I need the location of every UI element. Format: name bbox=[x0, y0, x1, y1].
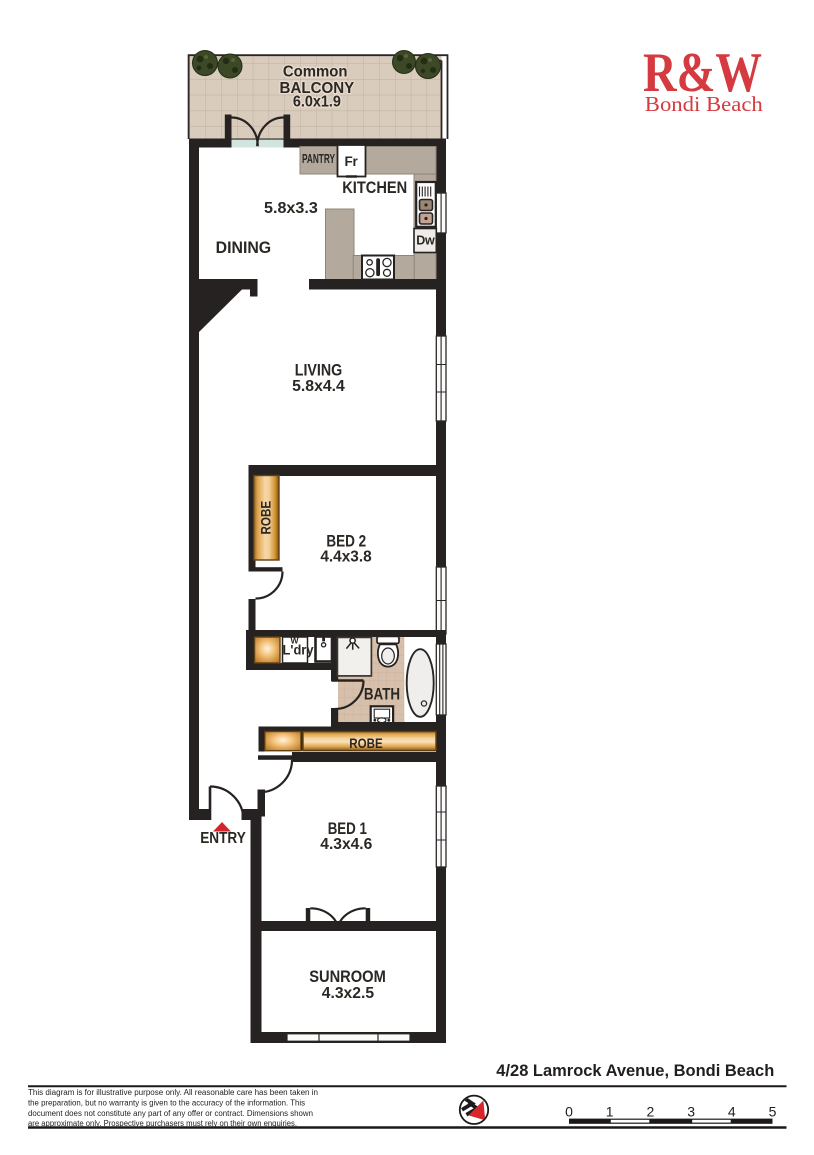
svg-text:4.4x3.8: 4.4x3.8 bbox=[320, 548, 371, 565]
svg-text:6.0x1.9: 6.0x1.9 bbox=[293, 93, 341, 110]
svg-text:Fr: Fr bbox=[345, 154, 359, 169]
svg-text:LIVING: LIVING bbox=[295, 361, 343, 379]
svg-text:ROBE: ROBE bbox=[259, 501, 274, 535]
svg-text:the preparation, but no warran: the preparation, but no warranty is give… bbox=[28, 1099, 305, 1108]
svg-text:Bondi Beach: Bondi Beach bbox=[645, 92, 763, 116]
svg-text:1: 1 bbox=[606, 1104, 614, 1120]
svg-text:ROBE: ROBE bbox=[349, 736, 383, 751]
svg-text:0: 0 bbox=[565, 1104, 573, 1120]
svg-text:This diagram is for illustrati: This diagram is for illustrative purpose… bbox=[28, 1088, 318, 1097]
svg-text:KITCHEN: KITCHEN bbox=[342, 179, 407, 197]
svg-text:5: 5 bbox=[769, 1104, 777, 1120]
svg-text:5.8x3.3: 5.8x3.3 bbox=[264, 200, 318, 217]
svg-text:3: 3 bbox=[687, 1104, 695, 1120]
svg-text:Dw: Dw bbox=[416, 234, 435, 248]
svg-text:BATH: BATH bbox=[364, 686, 400, 704]
svg-text:PANTRY: PANTRY bbox=[302, 151, 335, 166]
svg-text:ENTRY: ENTRY bbox=[200, 830, 246, 847]
svg-text:document does not constitute a: document does not constitute any part of… bbox=[28, 1109, 313, 1118]
svg-text:5.8x4.4: 5.8x4.4 bbox=[292, 378, 345, 395]
svg-text:SUNROOM: SUNROOM bbox=[309, 968, 386, 986]
svg-text:4.3x2.5: 4.3x2.5 bbox=[322, 985, 374, 1002]
svg-text:4/28 Lamrock Avenue, Bondi Bea: 4/28 Lamrock Avenue, Bondi Beach bbox=[496, 1061, 774, 1080]
svg-text:DINING: DINING bbox=[216, 239, 272, 257]
svg-text:2: 2 bbox=[647, 1104, 655, 1120]
svg-text:are approximate only. Prospect: are approximate only. Prospective purcha… bbox=[28, 1119, 297, 1128]
svg-text:4: 4 bbox=[728, 1104, 736, 1120]
svg-text:L'dry: L'dry bbox=[283, 642, 314, 657]
svg-text:Common: Common bbox=[283, 64, 348, 81]
svg-text:4.3x4.6: 4.3x4.6 bbox=[320, 836, 372, 853]
